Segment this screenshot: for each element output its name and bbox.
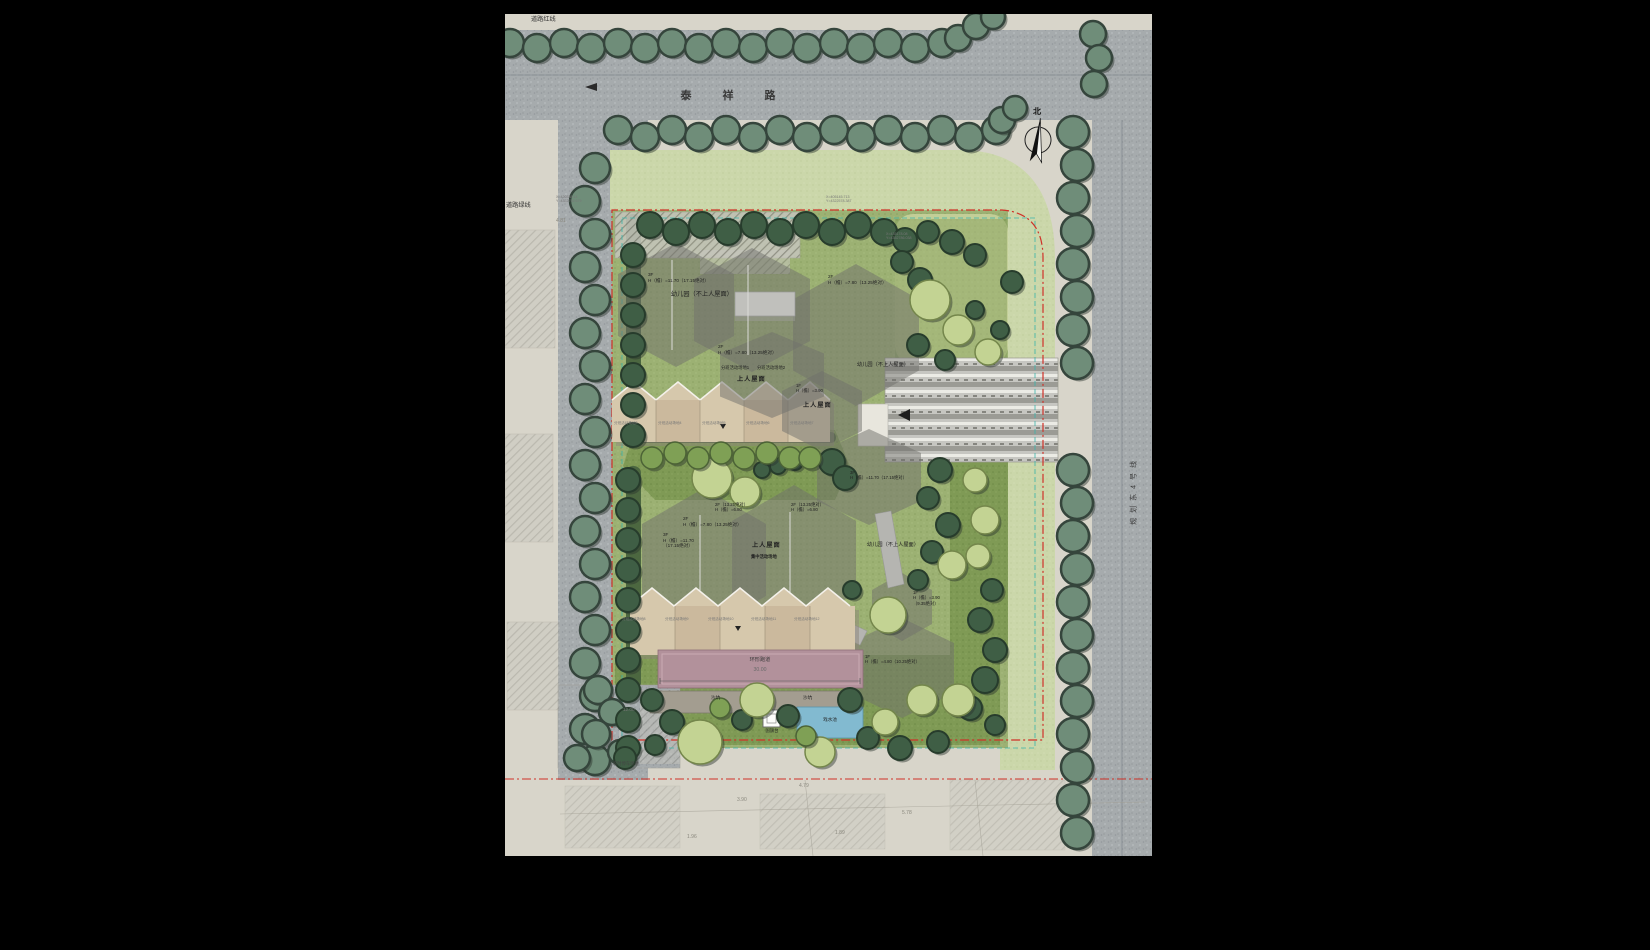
building4-roof-label: 上人屋面 <box>803 402 832 410</box>
class-area-label: 分班活动场地6 <box>746 421 770 425</box>
screenshot-stage: 道路红线 泰 祥 路 道路绿线 北 规划东4号线 3F H（檐）=11.70（1… <box>0 0 1650 950</box>
site-plan-svg <box>505 14 1152 856</box>
building4-height-label: 1F H（檐）=3.90 <box>796 383 823 394</box>
class-area-label: 分班活动场地12 <box>794 617 820 621</box>
class-area-label: 分班活动场地5 <box>702 421 726 425</box>
building5-height-label: 3F H（檐）=11.70（17.15绝对） <box>850 470 907 481</box>
class-activity-row2 <box>630 588 859 659</box>
sandpit-label-west: 沙坑 <box>711 695 720 701</box>
class-area-label: 分班活动场地7 <box>790 421 814 425</box>
coordinate-callout: X=420338.14Y=4352792.679 <box>556 195 581 204</box>
parking-dim: 12.00 <box>623 707 635 713</box>
building2-name: 幼儿园（不上人屋面） <box>857 362 909 369</box>
spot-elevation: 3.90 <box>737 797 747 803</box>
building3-roof-label: 上人屋面 <box>737 376 766 384</box>
spot-elevation: 1.89 <box>835 830 845 836</box>
building3-height-label: 2F H（檐）=7.80（13.25绝对） <box>718 344 777 355</box>
road-red-line-label: 道路红线 <box>531 16 556 24</box>
building3-area2: 分班活动场地2 <box>757 365 785 370</box>
class-area-label: 分班活动场地3 <box>614 421 638 425</box>
building7-height-label: 1F H（檐）=3.90 （9.35绝对） <box>913 590 940 606</box>
north-label: 北 <box>1033 107 1041 117</box>
pool-label: 戏水池 <box>800 717 860 723</box>
parking-label: 临时停车场地 <box>613 761 639 766</box>
spot-elevation: 4.79 <box>799 783 809 789</box>
coordinate-callout: X=405145.713Y=4322578.387 <box>826 195 851 204</box>
sandpit-label-east: 沙坑 <box>803 695 812 701</box>
spot-elevation: 4.81 <box>556 218 566 224</box>
track-label: 环形跑道 <box>710 657 810 664</box>
building6-roof-sub: 集中活动场地 <box>751 554 777 559</box>
eave-callout-a: 2F（13.25绝对） H（檐）=6.80 <box>715 502 748 513</box>
building2-height-label: 2F H（檐）=7.80（13.25绝对） <box>828 274 887 285</box>
road-green-line-label: 道路绿线 <box>506 202 531 210</box>
class-area-label: 分班活动场地4 <box>658 421 682 425</box>
class-area-label: 分班活动场地9 <box>665 617 689 621</box>
right-road-name: 规划东4号线 <box>1131 430 1140 550</box>
eave-callout-b: 2F（13.25绝对） H（檐）=6.80 <box>791 502 824 513</box>
building1-name: 幼儿园（不上人屋面） <box>671 291 733 299</box>
class-area-label: 分班活动场地8 <box>622 617 646 621</box>
building6-roof-label: 上人屋面 <box>752 542 781 550</box>
building6-2f-label: 2F H（檐）=7.80（13.25绝对） <box>683 516 742 527</box>
building6-3f-label: 3F H（檐）=11.70 （17.15绝对） <box>663 532 694 549</box>
building8-height-label: 1F H（檐）=4.80（10.25绝对） <box>865 654 920 665</box>
class-area-label: 分班活动场地11 <box>751 617 776 621</box>
top-road-name: 泰 祥 路 <box>625 90 845 104</box>
track-length: 30.00 <box>710 667 810 674</box>
site-plan: 道路红线 泰 祥 路 道路绿线 北 规划东4号线 3F H（檐）=11.70（1… <box>505 14 1152 856</box>
coordinate-callout: X=435178.08Y=4352786.038 <box>886 232 911 241</box>
building1-height-label: 3F H（檐）=11.70（17.15绝对） <box>648 272 709 283</box>
building6-name: 幼儿园（不上人屋面） <box>867 542 919 549</box>
class-area-label: 分班活动场地10 <box>708 617 734 621</box>
spot-elevation: 1.96 <box>687 834 697 840</box>
flag-platform-label: 国旗台 <box>756 728 788 733</box>
spot-elevation: 5.78 <box>902 810 912 816</box>
building3-area1: 分班活动场地1 <box>721 365 749 370</box>
